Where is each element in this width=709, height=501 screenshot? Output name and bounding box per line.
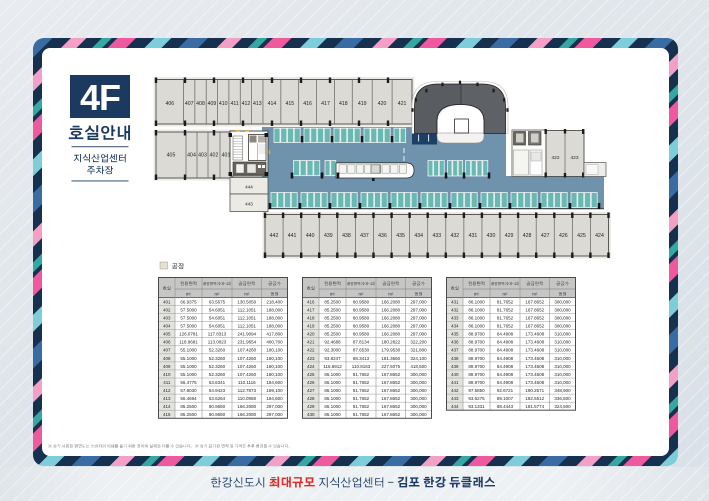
- svg-text:66.9375: 66.9375: [180, 299, 197, 304]
- svg-text:310,000: 310,000: [554, 348, 571, 353]
- svg-text:4F: 4F: [80, 77, 120, 118]
- svg-text:414: 414: [163, 404, 171, 409]
- svg-text:93.8247: 93.8247: [324, 356, 341, 361]
- svg-text:432: 432: [450, 233, 459, 239]
- svg-text:173.4608: 173.4608: [525, 340, 544, 345]
- svg-text:m²: m²: [388, 291, 393, 296]
- svg-text:87.8134: 87.8134: [353, 340, 370, 345]
- svg-text:441: 441: [451, 380, 459, 385]
- svg-text:412: 412: [163, 388, 171, 393]
- svg-text:433: 433: [432, 233, 441, 239]
- svg-text:85.2500: 85.2500: [324, 299, 341, 304]
- svg-text:93.1331: 93.1331: [468, 404, 485, 409]
- svg-text:80.9580: 80.9580: [353, 324, 370, 329]
- svg-text:116.6912: 116.6912: [323, 364, 342, 369]
- svg-text:52.3260: 52.3260: [209, 372, 226, 377]
- svg-text:88.9700: 88.9700: [468, 380, 485, 385]
- svg-text:425: 425: [577, 233, 586, 239]
- svg-text:297,000: 297,000: [410, 299, 427, 304]
- svg-text:112.1051: 112.1051: [238, 324, 257, 329]
- svg-text:426: 426: [307, 380, 315, 385]
- svg-text:110.1116: 110.1116: [238, 380, 256, 385]
- svg-text:406: 406: [163, 340, 171, 345]
- svg-text:166.2080: 166.2080: [381, 316, 400, 321]
- svg-text:167.8652: 167.8652: [381, 412, 400, 417]
- svg-text:57.5000: 57.5000: [180, 324, 197, 329]
- svg-text:80.9580: 80.9580: [209, 404, 226, 409]
- svg-text:54.6051: 54.6051: [209, 307, 226, 312]
- svg-text:409: 409: [208, 101, 217, 107]
- svg-text:166.2080: 166.2080: [237, 404, 256, 409]
- svg-text:443: 443: [245, 202, 253, 207]
- svg-text:m²: m²: [359, 291, 364, 296]
- svg-text:300,000: 300,000: [410, 396, 427, 401]
- svg-text:297,000: 297,000: [266, 404, 283, 409]
- svg-text:55.1000: 55.1000: [180, 356, 197, 361]
- svg-text:81.7652: 81.7652: [497, 307, 514, 312]
- svg-text:411: 411: [163, 380, 171, 385]
- svg-text:118.9681: 118.9681: [179, 340, 198, 345]
- svg-text:407: 407: [163, 348, 171, 353]
- svg-text:m²: m²: [244, 291, 249, 296]
- svg-text:80.9580: 80.9580: [353, 332, 370, 337]
- svg-text:88.9700: 88.9700: [468, 364, 485, 369]
- svg-text:184,600: 184,600: [266, 396, 283, 401]
- svg-text:426: 426: [559, 233, 568, 239]
- svg-text:442: 442: [451, 388, 459, 393]
- svg-text:435: 435: [451, 332, 459, 337]
- svg-text:404: 404: [163, 324, 171, 329]
- svg-text:97.5850: 97.5850: [468, 388, 485, 393]
- svg-text:m²: m²: [186, 291, 191, 296]
- svg-text:310,000: 310,000: [554, 364, 571, 369]
- svg-text:404: 404: [187, 153, 196, 159]
- svg-text:81.7652: 81.7652: [497, 324, 514, 329]
- svg-text:322,200: 322,200: [410, 340, 427, 345]
- svg-text:422: 422: [551, 155, 559, 161]
- svg-text:167.8652: 167.8652: [381, 372, 400, 377]
- svg-text:86.1000: 86.1000: [324, 412, 341, 417]
- svg-text:167.8652: 167.8652: [525, 307, 544, 312]
- svg-text:86.1000: 86.1000: [468, 299, 485, 304]
- svg-text:86.1000: 86.1000: [468, 307, 485, 312]
- svg-text:81.7652: 81.7652: [353, 412, 370, 417]
- svg-text:53.6264: 53.6264: [209, 396, 226, 401]
- svg-text:402: 402: [210, 153, 219, 159]
- svg-text:54.9423: 54.9423: [209, 388, 226, 393]
- svg-text:81.7652: 81.7652: [353, 404, 370, 409]
- svg-text:52.3260: 52.3260: [209, 364, 226, 369]
- svg-text:428: 428: [307, 396, 315, 401]
- svg-text:110.0958: 110.0958: [238, 396, 257, 401]
- svg-text:167.8652: 167.8652: [525, 324, 544, 329]
- svg-text:85.2500: 85.2500: [180, 404, 197, 409]
- svg-text:403: 403: [198, 153, 207, 159]
- svg-text:415: 415: [163, 412, 171, 417]
- svg-text:300,000: 300,000: [554, 299, 571, 304]
- svg-text:55.1000: 55.1000: [180, 348, 197, 353]
- svg-text:424: 424: [307, 364, 315, 369]
- svg-text:56.4775: 56.4775: [180, 380, 197, 385]
- svg-text:424: 424: [595, 233, 604, 239]
- svg-text:406: 406: [165, 101, 174, 107]
- svg-text:218,400: 218,400: [266, 299, 283, 304]
- svg-text:431: 431: [469, 233, 478, 239]
- svg-text:166.2080: 166.2080: [237, 412, 256, 417]
- svg-text:443: 443: [451, 396, 459, 401]
- svg-text:434: 434: [414, 233, 423, 239]
- svg-text:80.9580: 80.9580: [353, 299, 370, 304]
- svg-text:53.6341: 53.6341: [209, 380, 226, 385]
- svg-text:241.9094: 241.9094: [237, 332, 256, 337]
- svg-text:438: 438: [451, 356, 459, 361]
- svg-text:417: 417: [321, 101, 330, 107]
- svg-text:85.2500: 85.2500: [180, 412, 197, 417]
- svg-text:107.4260: 107.4260: [237, 356, 256, 361]
- svg-text:92.4688: 92.4688: [324, 340, 341, 345]
- svg-text:80.9580: 80.9580: [353, 316, 370, 321]
- svg-text:92.3000: 92.3000: [324, 348, 341, 353]
- svg-text:430: 430: [487, 233, 496, 239]
- svg-text:112.1051: 112.1051: [238, 316, 257, 321]
- svg-text:173.4608: 173.4608: [525, 332, 544, 337]
- svg-text:130.5050: 130.5050: [237, 299, 256, 304]
- svg-text:444: 444: [245, 185, 253, 190]
- svg-text:81.7652: 81.7652: [353, 380, 370, 385]
- svg-text:m²: m²: [532, 291, 537, 296]
- svg-text:418,500: 418,500: [410, 364, 427, 369]
- svg-text:429: 429: [505, 233, 514, 239]
- svg-text:85.2500: 85.2500: [324, 307, 341, 312]
- svg-text:180,100: 180,100: [266, 348, 283, 353]
- svg-text:415: 415: [285, 101, 294, 107]
- svg-text:442: 442: [270, 233, 279, 239]
- svg-text:416: 416: [303, 101, 312, 107]
- svg-text:166.2080: 166.2080: [381, 307, 400, 312]
- svg-text:55.1000: 55.1000: [180, 372, 197, 377]
- svg-text:324,100: 324,100: [410, 356, 427, 361]
- svg-text:m²: m²: [503, 291, 508, 296]
- svg-text:117.8313: 117.8313: [208, 332, 227, 337]
- svg-text:84.4908: 84.4908: [497, 332, 514, 337]
- svg-text:310,000: 310,000: [554, 332, 571, 337]
- svg-text:57.5000: 57.5000: [180, 307, 197, 312]
- svg-text:418: 418: [307, 316, 315, 321]
- svg-text:113.0023: 113.0023: [208, 340, 227, 345]
- svg-text:297,000: 297,000: [410, 332, 427, 337]
- svg-text:52.3260: 52.3260: [209, 348, 226, 353]
- svg-text:410: 410: [163, 372, 171, 377]
- svg-text:110.8163: 110.8163: [352, 364, 371, 369]
- svg-text:427: 427: [307, 388, 315, 393]
- svg-text:401: 401: [163, 299, 171, 304]
- svg-text:402: 402: [163, 307, 171, 312]
- svg-text:412: 412: [242, 101, 251, 107]
- svg-text:227.5075: 227.5075: [381, 364, 400, 369]
- svg-text:435: 435: [396, 233, 405, 239]
- svg-text:409: 409: [163, 364, 171, 369]
- svg-text:107.4260: 107.4260: [237, 364, 256, 369]
- svg-text:182.6512: 182.6512: [525, 396, 544, 401]
- svg-text:86.1000: 86.1000: [468, 316, 485, 321]
- svg-text:422: 422: [307, 348, 315, 353]
- svg-text:93.6275: 93.6275: [468, 396, 485, 401]
- svg-text:52.3260: 52.3260: [209, 356, 226, 361]
- svg-text:88.4443: 88.4443: [497, 404, 514, 409]
- svg-text:190.2571: 190.2571: [525, 388, 544, 393]
- svg-text:416: 416: [307, 299, 315, 304]
- svg-text:310,000: 310,000: [554, 372, 571, 377]
- svg-text:112.7873: 112.7873: [238, 388, 257, 393]
- svg-text:184,600: 184,600: [266, 380, 283, 385]
- svg-text:231.9654: 231.9654: [237, 340, 256, 345]
- svg-text:413: 413: [253, 101, 262, 107]
- svg-text:88.9700: 88.9700: [468, 340, 485, 345]
- svg-text:324,500: 324,500: [554, 404, 571, 409]
- svg-text:436: 436: [451, 340, 459, 345]
- svg-text:181.3660: 181.3660: [381, 356, 400, 361]
- svg-text:408: 408: [163, 356, 171, 361]
- svg-text:84.4908: 84.4908: [497, 364, 514, 369]
- svg-text:439: 439: [451, 364, 459, 369]
- svg-text:410: 410: [219, 101, 228, 107]
- svg-text:86.1000: 86.1000: [324, 388, 341, 393]
- svg-text:440: 440: [451, 372, 459, 377]
- svg-text:86.1000: 86.1000: [324, 372, 341, 377]
- svg-text:444: 444: [451, 404, 459, 409]
- svg-text:440: 440: [306, 233, 315, 239]
- svg-text:336,500: 336,500: [554, 396, 571, 401]
- svg-text:310,000: 310,000: [554, 380, 571, 385]
- svg-text:107.4260: 107.4260: [237, 372, 256, 377]
- svg-text:189,100: 189,100: [266, 388, 283, 393]
- svg-text:80.9580: 80.9580: [353, 307, 370, 312]
- svg-text:423: 423: [307, 356, 315, 361]
- svg-text:81.7652: 81.7652: [497, 299, 514, 304]
- svg-text:167.8652: 167.8652: [525, 316, 544, 321]
- svg-text:188,000: 188,000: [266, 324, 283, 329]
- svg-text:417: 417: [307, 307, 315, 312]
- svg-text:84.4908: 84.4908: [497, 348, 514, 353]
- svg-text:300,000: 300,000: [410, 372, 427, 377]
- svg-text:107.4260: 107.4260: [237, 348, 256, 353]
- svg-text:88.9700: 88.9700: [468, 372, 485, 377]
- svg-text:56.4694: 56.4694: [180, 396, 197, 401]
- svg-text:437: 437: [360, 233, 369, 239]
- svg-text:420: 420: [307, 332, 315, 337]
- svg-text:408: 408: [196, 101, 205, 107]
- svg-text:297,000: 297,000: [410, 324, 427, 329]
- svg-text:421: 421: [307, 340, 315, 345]
- svg-text:173.4608: 173.4608: [525, 348, 544, 353]
- svg-text:437: 437: [451, 348, 459, 353]
- svg-text:414: 414: [268, 101, 277, 107]
- svg-text:92.6721: 92.6721: [497, 388, 514, 393]
- svg-text:400,700: 400,700: [266, 340, 283, 345]
- svg-text:417,800: 417,800: [266, 332, 283, 337]
- svg-text:180,100: 180,100: [266, 364, 283, 369]
- svg-text:55.1000: 55.1000: [180, 364, 197, 369]
- svg-text:166.2080: 166.2080: [381, 332, 400, 337]
- svg-text:57.8030: 57.8030: [180, 388, 197, 393]
- svg-text:84.4908: 84.4908: [497, 372, 514, 377]
- svg-text:300,000: 300,000: [410, 380, 427, 385]
- svg-text:188,000: 188,000: [266, 316, 283, 321]
- svg-text:167.8652: 167.8652: [525, 299, 544, 304]
- svg-text:300,000: 300,000: [554, 324, 571, 329]
- svg-text:167.8652: 167.8652: [381, 380, 400, 385]
- svg-text:87.6530: 87.6530: [353, 348, 370, 353]
- svg-text:181.5774: 181.5774: [525, 404, 544, 409]
- svg-text:427: 427: [541, 233, 550, 239]
- svg-text:310,000: 310,000: [554, 356, 571, 361]
- svg-text:m²: m²: [474, 291, 479, 296]
- svg-text:179.9530: 179.9530: [381, 348, 400, 353]
- svg-text:434: 434: [451, 324, 459, 329]
- svg-text:419: 419: [358, 101, 367, 107]
- svg-text:84.4908: 84.4908: [497, 356, 514, 361]
- svg-text:310,000: 310,000: [554, 340, 571, 345]
- svg-text:425: 425: [307, 372, 315, 377]
- svg-text:405: 405: [163, 332, 171, 337]
- svg-text:126.0781: 126.0781: [179, 332, 198, 337]
- svg-text:419: 419: [307, 324, 315, 329]
- svg-text:188,000: 188,000: [266, 307, 283, 312]
- svg-text:167.8652: 167.8652: [381, 396, 400, 401]
- svg-text:411: 411: [230, 101, 238, 107]
- svg-text:167.8652: 167.8652: [381, 404, 400, 409]
- svg-text:54.6051: 54.6051: [209, 324, 226, 329]
- svg-text:85.2500: 85.2500: [324, 316, 341, 321]
- svg-text:m²: m²: [330, 291, 335, 296]
- svg-text:436: 436: [378, 233, 387, 239]
- svg-text:88.9700: 88.9700: [468, 332, 485, 337]
- svg-text:421: 421: [398, 101, 407, 107]
- svg-text:321,800: 321,800: [410, 348, 427, 353]
- svg-text:63.5675: 63.5675: [209, 299, 226, 304]
- svg-text:180.2822: 180.2822: [381, 340, 400, 345]
- svg-text:166.2080: 166.2080: [381, 324, 400, 329]
- svg-text:84.4908: 84.4908: [497, 380, 514, 385]
- svg-text:401: 401: [222, 153, 231, 159]
- svg-text:418: 418: [339, 101, 348, 107]
- svg-text:84.4908: 84.4908: [497, 340, 514, 345]
- svg-text:88.9700: 88.9700: [468, 356, 485, 361]
- svg-text:85.2500: 85.2500: [324, 332, 341, 337]
- svg-text:428: 428: [523, 233, 532, 239]
- svg-text:86.1000: 86.1000: [468, 324, 485, 329]
- svg-text:297,000: 297,000: [266, 412, 283, 417]
- svg-text:112.1051: 112.1051: [238, 307, 257, 312]
- svg-text:438: 438: [342, 233, 351, 239]
- svg-text:439: 439: [324, 233, 333, 239]
- svg-text:86.1000: 86.1000: [324, 396, 341, 401]
- svg-text:297,000: 297,000: [410, 316, 427, 321]
- svg-text:429: 429: [307, 404, 315, 409]
- svg-text:88.3413: 88.3413: [353, 356, 370, 361]
- svg-text:441: 441: [288, 233, 297, 239]
- svg-text:300,000: 300,000: [410, 412, 427, 417]
- svg-text:166.2080: 166.2080: [381, 299, 400, 304]
- svg-text:m²: m²: [215, 291, 220, 296]
- svg-text:173.4608: 173.4608: [525, 372, 544, 377]
- svg-text:432: 432: [451, 307, 459, 312]
- svg-text:300,000: 300,000: [554, 316, 571, 321]
- svg-text:407: 407: [185, 101, 194, 107]
- svg-text:433: 433: [451, 316, 459, 321]
- svg-text:180,100: 180,100: [266, 356, 283, 361]
- svg-text:430: 430: [307, 412, 315, 417]
- svg-text:405: 405: [167, 153, 176, 159]
- svg-text:173.4608: 173.4608: [525, 364, 544, 369]
- svg-text:173.4608: 173.4608: [525, 356, 544, 361]
- svg-text:88.9700: 88.9700: [468, 348, 485, 353]
- svg-text:420: 420: [378, 101, 387, 107]
- svg-text:423: 423: [570, 155, 578, 161]
- svg-text:173.4608: 173.4608: [525, 380, 544, 385]
- svg-text:89.1007: 89.1007: [497, 396, 514, 401]
- svg-text:86.1000: 86.1000: [324, 404, 341, 409]
- svg-text:81.7652: 81.7652: [353, 372, 370, 377]
- svg-text:300,000: 300,000: [410, 388, 427, 393]
- svg-text:403: 403: [163, 316, 171, 321]
- svg-text:86.1000: 86.1000: [324, 380, 341, 385]
- svg-text:180,100: 180,100: [266, 372, 283, 377]
- svg-text:300,000: 300,000: [554, 307, 571, 312]
- svg-text:348,900: 348,900: [554, 388, 571, 393]
- svg-text:300,000: 300,000: [410, 404, 427, 409]
- svg-text:85.2500: 85.2500: [324, 324, 341, 329]
- svg-text:54.6051: 54.6051: [209, 316, 226, 321]
- svg-text:297,000: 297,000: [410, 307, 427, 312]
- svg-text:57.5000: 57.5000: [180, 316, 197, 321]
- svg-text:81.7652: 81.7652: [497, 316, 514, 321]
- svg-text:81.7652: 81.7652: [353, 396, 370, 401]
- svg-text:80.9580: 80.9580: [209, 412, 226, 417]
- svg-text:431: 431: [451, 299, 459, 304]
- svg-text:167.8652: 167.8652: [381, 388, 400, 393]
- svg-text:81.7652: 81.7652: [353, 388, 370, 393]
- svg-text:413: 413: [163, 396, 171, 401]
